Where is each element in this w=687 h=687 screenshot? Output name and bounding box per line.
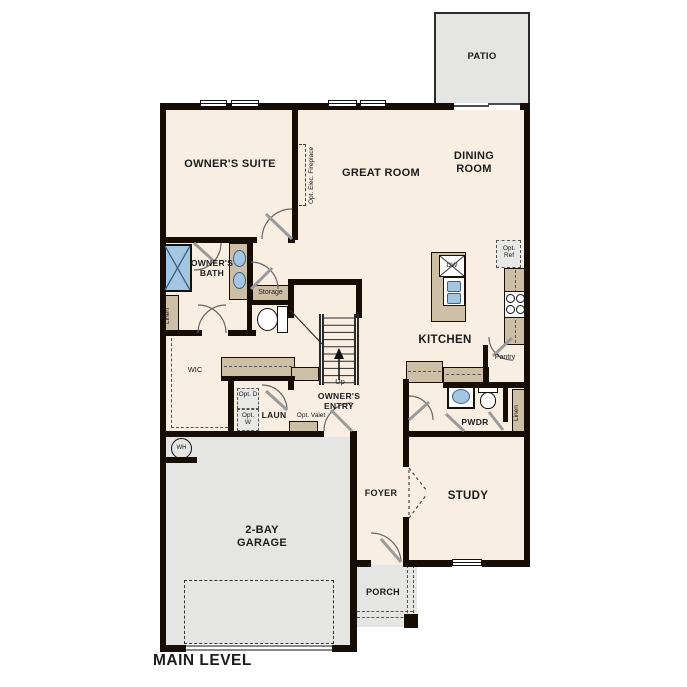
generated-structure-layer <box>0 0 687 687</box>
room-label-owners-bath: OWNER'S BATH <box>181 259 243 279</box>
note-opt-valet: Opt. Valet <box>287 412 335 419</box>
closet-label-linen-pwdr: Linen <box>513 396 520 430</box>
room-label-owners-entry: OWNER'S ENTRY <box>306 392 372 412</box>
symbols-layer <box>0 0 687 687</box>
closet-label-storage: Storage <box>251 289 290 297</box>
floor-plan: PATIO OWNER'S SUITE GREAT ROOM DINING RO… <box>0 0 687 687</box>
room-label-great-room: GREAT ROOM <box>342 167 420 180</box>
note-opt-dryer: Opt. D <box>238 391 258 398</box>
room-label-pantry: Pantry <box>484 354 526 362</box>
note-opt-washer: Opt. W <box>238 412 258 427</box>
room-label-foyer: FOYER <box>355 488 407 498</box>
room-label-wic: WIC <box>175 366 215 375</box>
note-opt-elec-fireplace: Opt. Elec. Fireplace <box>308 139 315 211</box>
room-label-patio: PATIO <box>434 52 530 63</box>
room-label-porch: PORCH <box>357 587 409 597</box>
appliance-label-dishwasher: DW <box>440 262 464 269</box>
room-label-laundry: LAUN <box>258 411 290 421</box>
patio-slider-lines <box>454 104 520 106</box>
room-label-kitchen: KITCHEN <box>405 334 485 347</box>
room-label-owners-suite: OWNER'S SUITE <box>180 158 280 171</box>
closet-label-linen-hall: Linen <box>164 300 171 332</box>
room-label-study: STUDY <box>430 490 506 503</box>
appliance-label-water-heater: WH <box>171 445 192 452</box>
note-opt-ref: Opt. Ref <box>497 245 521 260</box>
note-stairs-up: Up <box>330 378 350 387</box>
stair-break-line <box>290 310 322 344</box>
plan-title: MAIN LEVEL <box>153 652 353 670</box>
room-label-pwdr: PWDR <box>450 418 500 428</box>
garage-door-lines <box>186 646 332 650</box>
room-label-garage: 2-BAY GARAGE <box>222 524 302 549</box>
opt-french-doors <box>409 468 427 518</box>
room-label-dining-room: DINING ROOM <box>438 150 510 175</box>
